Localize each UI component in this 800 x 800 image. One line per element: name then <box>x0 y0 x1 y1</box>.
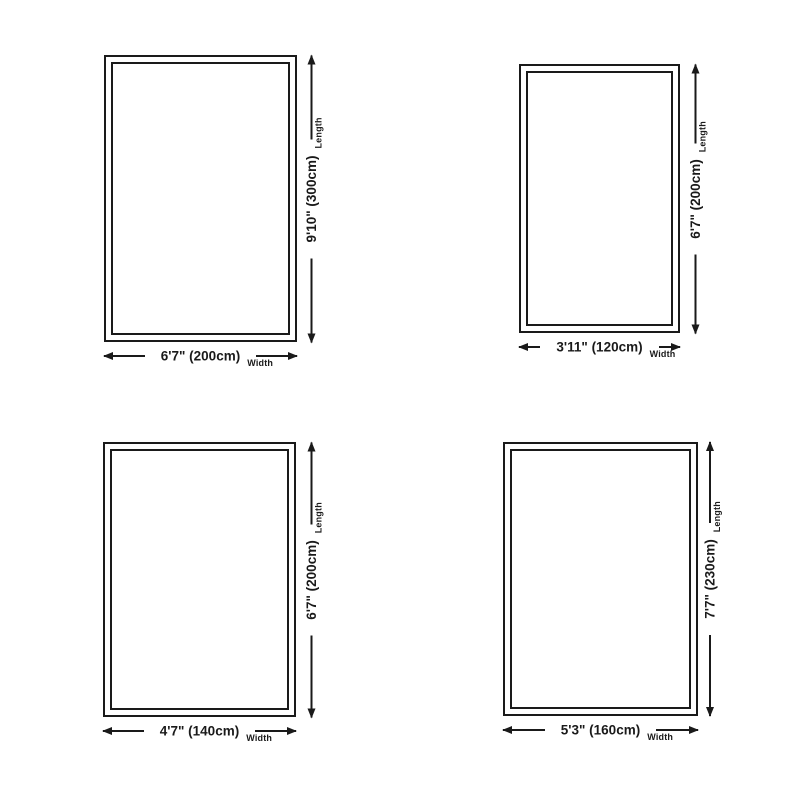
arrow-up-icon: Length <box>311 55 313 139</box>
arrow-down-icon <box>695 255 697 334</box>
arrow-down-icon <box>311 636 313 718</box>
length-value: 6'7" (200cm) <box>689 159 703 238</box>
rug-size-chart: 6'7" (200cm) Width 9'10" (300cm) Length … <box>0 0 800 800</box>
length-value: 7'7" (230cm) <box>704 539 718 618</box>
rug-outline <box>503 442 698 716</box>
width-dimension: 4'7" (140cm) Width <box>103 722 296 740</box>
width-dimension: 3'11" (120cm) Width <box>519 338 680 356</box>
rug-inner-outline <box>111 62 290 335</box>
rug-outline <box>519 64 680 333</box>
rug-diagram-bottom-left: 4'7" (140cm) Width 6'7" (200cm) Length <box>103 442 296 717</box>
rug-diagram-top-right: 3'11" (120cm) Width 6'7" (200cm) Length <box>519 64 680 333</box>
arrow-left-icon <box>503 729 545 731</box>
rug-inner-outline <box>510 449 691 709</box>
width-dimension: 5'3" (160cm) Width <box>503 721 698 739</box>
width-value: 4'7" (140cm) <box>160 725 239 739</box>
arrow-left-icon <box>103 730 144 732</box>
width-dimension: 6'7" (200cm) Width <box>104 347 297 365</box>
length-caption: Length <box>713 501 722 532</box>
length-caption: Length <box>315 117 324 148</box>
width-value: 6'7" (200cm) <box>161 350 240 364</box>
length-dimension: 7'7" (230cm) Length <box>701 442 719 716</box>
rug-outline <box>103 442 296 717</box>
arrow-left-icon <box>104 355 145 357</box>
arrow-down-icon <box>311 258 313 342</box>
length-caption: Length <box>315 502 324 533</box>
length-dimension: 6'7" (200cm) Length <box>303 443 321 718</box>
arrow-up-icon: Length <box>695 65 697 144</box>
width-caption: Width <box>246 734 272 743</box>
arrow-right-icon: Width <box>255 730 296 732</box>
width-value: 5'3" (160cm) <box>561 724 640 738</box>
length-value: 6'7" (200cm) <box>305 540 319 619</box>
width-caption: Width <box>647 733 673 742</box>
arrow-right-icon: Width <box>659 346 680 348</box>
width-caption: Width <box>650 350 676 359</box>
arrow-up-icon: Length <box>311 443 313 525</box>
arrow-left-icon <box>519 346 540 348</box>
rug-diagram-top-left: 6'7" (200cm) Width 9'10" (300cm) Length <box>104 55 297 342</box>
length-caption: Length <box>699 121 708 152</box>
rug-outline <box>104 55 297 342</box>
arrow-up-icon: Length <box>709 442 711 523</box>
width-caption: Width <box>247 359 273 368</box>
arrow-down-icon <box>709 635 711 716</box>
arrow-right-icon: Width <box>656 729 698 731</box>
length-dimension: 6'7" (200cm) Length <box>687 65 705 334</box>
rug-inner-outline <box>110 449 289 710</box>
length-dimension: 9'10" (300cm) Length <box>303 56 321 343</box>
width-value: 3'11" (120cm) <box>556 341 642 355</box>
arrow-right-icon: Width <box>256 355 297 357</box>
rug-inner-outline <box>526 71 673 326</box>
rug-diagram-bottom-right: 5'3" (160cm) Width 7'7" (230cm) Length <box>503 442 698 716</box>
length-value: 9'10" (300cm) <box>305 156 319 243</box>
